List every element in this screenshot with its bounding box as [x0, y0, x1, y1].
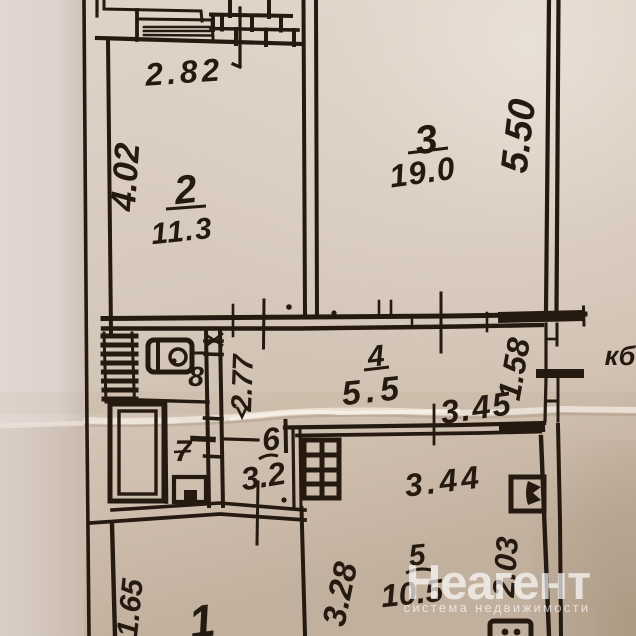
- svg-text:3.2: 3.2: [238, 455, 288, 498]
- svg-text:11.3: 11.3: [149, 212, 214, 251]
- svg-text:1.65: 1.65: [111, 576, 150, 636]
- svg-text:2.77: 2.77: [226, 352, 260, 412]
- svg-text:4.02: 4.02: [104, 141, 148, 213]
- svg-text:5.5: 5.5: [340, 369, 406, 413]
- svg-text:2.82: 2.82: [143, 51, 225, 92]
- svg-text:кб: кб: [605, 341, 636, 371]
- svg-text:8: 8: [188, 361, 204, 392]
- svg-text:5.50: 5.50: [494, 97, 545, 176]
- svg-text:система недвижимости: система недвижимости: [404, 600, 591, 615]
